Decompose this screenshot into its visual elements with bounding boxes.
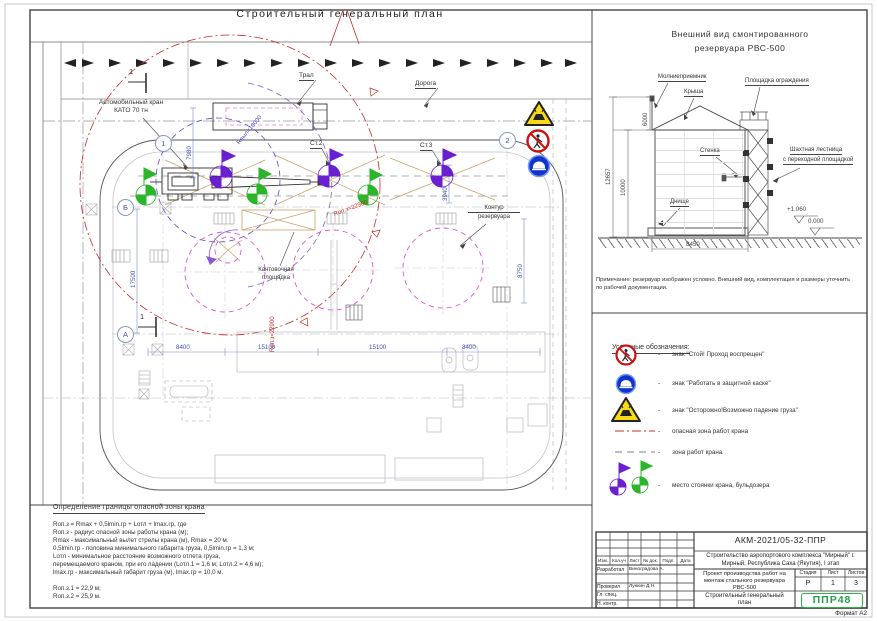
sheet-title: Строительный генеральный план bbox=[180, 8, 500, 20]
grid-axis-2: 2 bbox=[499, 132, 516, 149]
row-developer-role: Разработал bbox=[597, 567, 624, 573]
calc-line-1: Rоп.з = Rmax + 0,5lmin.гр + Lотл + lmax.… bbox=[53, 521, 187, 528]
ladder-label-line2: с переходной площадкой bbox=[783, 157, 853, 165]
tank-contour-label-line1: Контур bbox=[468, 205, 520, 213]
row-developer-name: Виноградова А. bbox=[629, 567, 664, 572]
dim-15100-b: 15100 bbox=[369, 344, 386, 351]
row-norm-control-role: Н. контр. bbox=[597, 601, 618, 607]
tilting-pad-label-line2: площадка bbox=[244, 275, 308, 282]
calc-line-3: Rmax - максимальный вылет стрелы крана (… bbox=[53, 537, 229, 544]
project-name-line1: Строительство аэропортового комплекса "М… bbox=[696, 553, 865, 559]
sheet-header: Лист bbox=[821, 570, 845, 576]
legend-item-warning: знак "Осторожно!Возможно падение груза" bbox=[672, 407, 798, 414]
stage-header: Стадия bbox=[795, 570, 821, 576]
dim-17500: 17500 bbox=[130, 271, 137, 288]
dim-3940: 3940 bbox=[442, 187, 449, 201]
calc-line-4: 0,5lmin.гр - половина минимального габар… bbox=[53, 545, 255, 552]
sheets-header: Листов bbox=[845, 570, 867, 576]
format-note: Формат А2 bbox=[812, 610, 867, 617]
guard-platform-label: Площадка ограждения bbox=[745, 78, 809, 86]
legend-dash-3: - bbox=[658, 407, 660, 414]
section-mark-top: 1 bbox=[129, 68, 133, 77]
project-name-line2: Мирный, Республика Саха (Якутия), I этап bbox=[696, 561, 865, 567]
calc-line-6: перемещаемого краном, при его падении (L… bbox=[53, 561, 263, 568]
work-name-line1: Проект производства работ на bbox=[696, 571, 793, 577]
row-checker-role: Проверил bbox=[597, 584, 620, 590]
calc-line-5: Lотл - минимальное расстояние возможного… bbox=[53, 553, 220, 560]
road-label: Дорога bbox=[415, 80, 436, 89]
section-mark-left: 1 bbox=[140, 313, 144, 322]
roof-label: Крыша bbox=[684, 89, 703, 97]
ladder-label-line1: Шахтная лестница bbox=[790, 147, 842, 155]
bottom-label: Днище bbox=[670, 199, 689, 207]
legend-item-danger-zone: опасная зона работ крана bbox=[672, 428, 748, 435]
calc-line-2: Rоп.з - радиус опасной зоны работы крана… bbox=[53, 529, 188, 536]
dim-8400-b: 8400 bbox=[462, 344, 476, 351]
dim-7980: 7980 bbox=[186, 146, 193, 160]
level-plus-1060: +1.060 bbox=[787, 206, 806, 213]
elevation-note-line2: по рабочей документации. bbox=[596, 285, 866, 292]
dim-8750: 8750 bbox=[517, 264, 524, 278]
col-podp: Подп. bbox=[660, 558, 677, 563]
legend-dash-4: - bbox=[658, 428, 660, 435]
crane-label-line2: КАТО 70 тн bbox=[95, 107, 167, 114]
col-izm: Изм. bbox=[596, 558, 610, 563]
calc-header: Определение границы опасной зоны крана bbox=[53, 504, 205, 514]
crane-label-line1: Автомобильный кран bbox=[95, 99, 167, 106]
stage-value: Р bbox=[795, 580, 821, 587]
legend-dash-5: - bbox=[658, 449, 660, 456]
ground-hatch bbox=[598, 239, 860, 248]
level-zero: 0.000 bbox=[808, 218, 823, 225]
doc-number: АКМ-2021/05-32-ППР bbox=[694, 535, 867, 545]
sheet-name-line2: план bbox=[696, 600, 793, 606]
ppr48-logo: ППР48 bbox=[801, 593, 863, 608]
row-checker-name: Лункин Д.Н. bbox=[629, 584, 655, 589]
legend-dash-6: - bbox=[658, 482, 660, 489]
wall-label: Стенка bbox=[700, 148, 720, 156]
sheet-value: 1 bbox=[821, 580, 845, 587]
dim-8400-a: 8400 bbox=[176, 344, 190, 351]
legend-dash-2: - bbox=[658, 380, 660, 387]
elevation-title-line2: резервуара РВС-500 bbox=[640, 44, 840, 54]
grid-axis-1: 1 bbox=[155, 135, 172, 152]
station-2-label: Ст.2 bbox=[310, 140, 322, 149]
legend-item-work-zone: зона работ крана bbox=[672, 449, 722, 456]
tilting-pad-label-line1: Кантовочная bbox=[244, 267, 308, 274]
col-data: Дата bbox=[677, 558, 694, 563]
lightning-rod-label: Молниеприемник bbox=[658, 74, 706, 82]
col-koluch: Кол.уч bbox=[610, 558, 628, 563]
truck-crane-shape bbox=[150, 168, 326, 200]
grid-axis-b: Б bbox=[117, 199, 134, 216]
elevation-title-line1: Внешний вид смонтированного bbox=[640, 30, 840, 40]
legend-item-no-entry: знак "Стой! Проход воспрещен" bbox=[672, 351, 764, 358]
tank-shell-pattern bbox=[656, 131, 744, 234]
dim-15100-a: 15100 bbox=[258, 344, 275, 351]
dim-10000: 10000 bbox=[621, 179, 628, 196]
tank-contour-label-line2: резервуара bbox=[468, 214, 520, 221]
station-3-label: Ст.3 bbox=[420, 142, 432, 151]
dim-8450: 8450 bbox=[686, 241, 700, 248]
dim-12657: 12657 bbox=[606, 168, 613, 185]
col-list: Лист bbox=[628, 558, 641, 563]
sheets-value: 3 bbox=[845, 580, 867, 587]
trailer-label: Трал bbox=[299, 72, 314, 81]
dim-6000: 6000 bbox=[643, 113, 650, 126]
legend-dash-1: - bbox=[658, 351, 660, 358]
sheet-name-line1: Строительный генеральный bbox=[696, 593, 793, 599]
legend-item-helmet: знак "Работать в защитной каске" bbox=[672, 380, 771, 387]
col-ndok: № док. bbox=[641, 558, 660, 563]
work-name-line2: монтаж стального резервуара bbox=[696, 578, 793, 584]
drawing-sheet: Строительный генеральный план Трал Дорог… bbox=[0, 0, 877, 621]
elevation-note-line1: Примечание: резервуар изображен условно.… bbox=[596, 277, 866, 284]
calc-line-7: lmax.гр - максимальный габарит груза (м)… bbox=[53, 569, 223, 576]
grid-axis-a: А bbox=[117, 326, 134, 343]
legend-item-stand-place: место стоянки крана, бульдозера bbox=[672, 482, 770, 489]
calc-result-2: Rоп.з.2 = 25,9 м. bbox=[53, 593, 101, 600]
row-chief-spec-role: Гл. спец. bbox=[597, 592, 617, 598]
work-name-line3: РВС-500 bbox=[696, 585, 793, 591]
calc-result-1: Rоп.з.1 = 22,9 м; bbox=[53, 585, 101, 592]
